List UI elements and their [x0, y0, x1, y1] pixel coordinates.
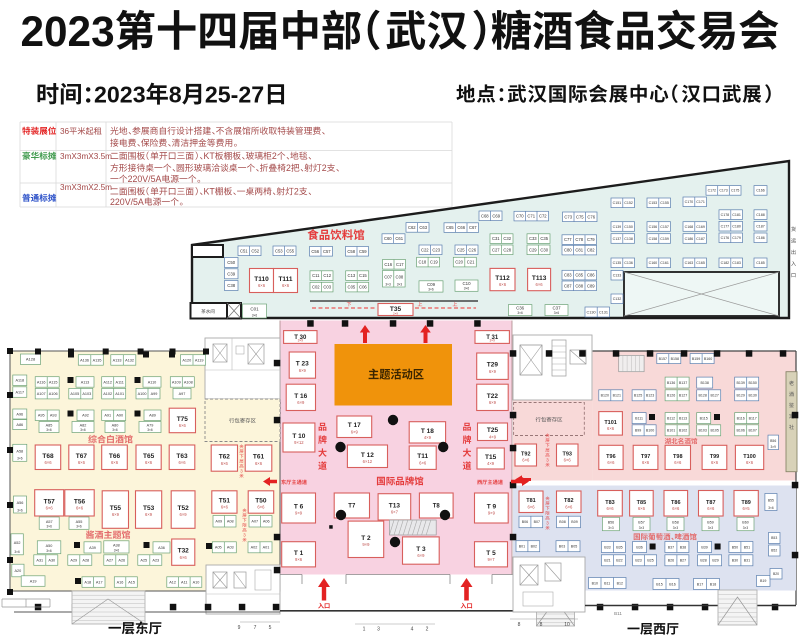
- svg-text:B130: B130: [748, 394, 756, 398]
- svg-text:3×6: 3×6: [428, 288, 434, 292]
- svg-text:C02: C02: [312, 285, 320, 290]
- svg-text:C175: C175: [731, 189, 739, 193]
- svg-text:B27: B27: [680, 559, 686, 563]
- svg-text:C25: C25: [457, 247, 465, 252]
- svg-text:T51: T51: [219, 498, 231, 505]
- svg-text:T 5: T 5: [486, 550, 496, 557]
- svg-text:3×6: 3×6: [464, 287, 470, 291]
- svg-text:B137: B137: [679, 381, 687, 385]
- svg-text:C83: C83: [564, 273, 572, 278]
- svg-text:A39: A39: [89, 546, 96, 550]
- svg-text:T66: T66: [109, 453, 121, 460]
- svg-text:T22: T22: [487, 393, 499, 400]
- svg-text:A103: A103: [82, 392, 91, 396]
- svg-text:2023: 2023: [94, 82, 146, 108]
- svg-text:6×6: 6×6: [607, 426, 615, 431]
- svg-text:C88: C88: [575, 283, 583, 288]
- svg-text:T 10: T 10: [292, 433, 305, 440]
- svg-text:C01: C01: [250, 307, 259, 312]
- svg-text:A25: A25: [140, 558, 147, 562]
- svg-text:9×9: 9×9: [295, 511, 303, 516]
- svg-text:T92: T92: [521, 452, 530, 458]
- svg-text:T 17: T 17: [348, 422, 361, 429]
- svg-text:C169: C169: [696, 225, 705, 229]
- svg-text:6×6: 6×6: [255, 461, 263, 466]
- svg-text:C65: C65: [446, 225, 454, 230]
- svg-text:C21: C21: [467, 260, 475, 265]
- svg-text:C155: C155: [660, 201, 669, 205]
- svg-text:T83: T83: [605, 500, 614, 506]
- svg-text:B36: B36: [636, 545, 642, 549]
- svg-text:B30: B30: [732, 559, 738, 563]
- svg-text:B159: B159: [692, 357, 700, 361]
- svg-text:6×6: 6×6: [672, 506, 680, 511]
- svg-text:3×3: 3×3: [743, 526, 749, 530]
- svg-text:6×6: 6×6: [419, 460, 427, 465]
- svg-text:9: 9: [238, 625, 241, 631]
- svg-text:C39: C39: [227, 271, 235, 276]
- svg-text:B100: B100: [646, 429, 654, 433]
- svg-text:C23: C23: [432, 247, 440, 252]
- svg-text:B55: B55: [768, 499, 774, 503]
- svg-text:A36: A36: [158, 546, 165, 550]
- svg-text:T99: T99: [710, 454, 719, 460]
- svg-text:C187: C187: [756, 225, 765, 229]
- svg-text:2: 2: [286, 163, 291, 173]
- svg-text:B103: B103: [698, 429, 706, 433]
- svg-text:C11: C11: [312, 273, 320, 278]
- svg-text:A118: A118: [16, 379, 25, 383]
- svg-text:6×6: 6×6: [564, 458, 572, 463]
- svg-text:T101: T101: [604, 420, 617, 426]
- svg-text:6×9: 6×9: [112, 512, 120, 517]
- svg-text:C37: C37: [552, 306, 561, 311]
- svg-text:C131: C131: [599, 310, 608, 314]
- svg-text:6×6: 6×6: [606, 506, 614, 511]
- svg-text:C17: C17: [396, 262, 404, 267]
- svg-text:B53: B53: [771, 536, 777, 540]
- svg-text:B50: B50: [732, 545, 738, 549]
- svg-text:A100: A100: [138, 392, 147, 396]
- svg-text:2: 2: [294, 187, 299, 197]
- svg-text:B35: B35: [616, 545, 622, 549]
- svg-text:B05: B05: [571, 545, 577, 549]
- svg-text:6×6: 6×6: [179, 423, 187, 428]
- svg-text:6×6: 6×6: [221, 461, 229, 466]
- svg-text:6×6: 6×6: [522, 458, 530, 463]
- svg-text:6×6: 6×6: [642, 460, 650, 465]
- svg-text:T89: T89: [741, 500, 750, 506]
- svg-text:B58: B58: [672, 521, 678, 525]
- svg-text:T111: T111: [278, 276, 292, 283]
- svg-text:A20: A20: [15, 569, 22, 573]
- svg-text:2: 2: [426, 627, 429, 633]
- svg-text:C76: C76: [587, 214, 595, 219]
- svg-text:9×7: 9×7: [487, 557, 495, 562]
- svg-text:C165: C165: [696, 261, 705, 265]
- svg-text:B52: B52: [771, 549, 777, 553]
- svg-text:B16: B16: [669, 582, 675, 586]
- svg-text:C78: C78: [575, 237, 583, 242]
- svg-text:B38: B38: [680, 545, 686, 549]
- svg-text:A106: A106: [49, 392, 58, 396]
- svg-text:6×6: 6×6: [178, 460, 186, 465]
- svg-text:4×9: 4×9: [424, 435, 432, 440]
- svg-text:A86: A86: [16, 423, 23, 427]
- svg-text:C185: C185: [756, 261, 765, 265]
- svg-text:T96: T96: [606, 454, 615, 460]
- svg-text:3×3: 3×3: [385, 282, 391, 286]
- svg-text:C161: C161: [660, 261, 669, 265]
- svg-text:C03: C03: [323, 285, 331, 290]
- svg-text:3mX3mX3.5m: 3mX3mX3.5m: [60, 152, 112, 161]
- svg-text:C07: C07: [384, 274, 392, 279]
- svg-text:3×6: 3×6: [80, 428, 86, 432]
- svg-text:C69: C69: [492, 213, 500, 218]
- svg-text:B60: B60: [742, 521, 748, 525]
- svg-text:T 18: T 18: [421, 428, 434, 435]
- svg-text:A115: A115: [49, 380, 58, 384]
- svg-text:C181: C181: [732, 213, 741, 217]
- svg-text:C188: C188: [756, 213, 765, 217]
- svg-text:6×6: 6×6: [607, 460, 615, 465]
- svg-text:3×6: 3×6: [517, 311, 523, 315]
- svg-text:6×9: 6×9: [145, 512, 153, 517]
- svg-text:C137: C137: [613, 237, 622, 241]
- svg-text:B18: B18: [710, 582, 716, 586]
- svg-text:C71: C71: [527, 214, 535, 219]
- svg-text:T7: T7: [348, 504, 356, 510]
- svg-text:T15: T15: [485, 454, 497, 461]
- svg-text:C26: C26: [468, 247, 476, 252]
- svg-text:6×6: 6×6: [499, 282, 507, 287]
- svg-text:B138: B138: [700, 381, 708, 385]
- svg-text:A120: A120: [182, 358, 191, 362]
- svg-text:T67: T67: [76, 453, 88, 460]
- svg-text:C82: C82: [587, 248, 595, 253]
- svg-text:T82: T82: [564, 498, 573, 504]
- svg-text:B102: B102: [679, 429, 687, 433]
- svg-text:A93: A93: [50, 414, 57, 418]
- svg-text:C156: C156: [649, 225, 658, 229]
- svg-text:3×3: 3×3: [397, 282, 403, 286]
- svg-text:3×6: 3×6: [112, 428, 118, 432]
- svg-text:A02: A02: [251, 546, 258, 550]
- svg-text:6×6: 6×6: [46, 506, 54, 511]
- svg-text:T 6: T 6: [294, 504, 304, 511]
- svg-text:T63: T63: [176, 453, 188, 460]
- svg-text:T 12: T 12: [361, 452, 374, 459]
- svg-text:B106: B106: [736, 429, 744, 433]
- svg-text:3×6: 3×6: [17, 457, 23, 461]
- svg-text:C173: C173: [719, 189, 727, 193]
- svg-text:C135: C135: [613, 261, 622, 265]
- svg-text:T100: T100: [743, 454, 756, 460]
- svg-text:A89: A89: [149, 414, 156, 418]
- svg-text:T97: T97: [641, 454, 650, 460]
- svg-text:9×6: 9×6: [295, 557, 303, 562]
- svg-text:A23: A23: [152, 558, 159, 562]
- svg-text:B126: B126: [667, 394, 675, 398]
- svg-text:B08: B08: [559, 520, 565, 524]
- svg-text:C75: C75: [576, 214, 584, 219]
- svg-text:3×9: 3×9: [298, 339, 304, 343]
- svg-text:T81: T81: [526, 498, 535, 504]
- svg-text:T52: T52: [177, 505, 189, 512]
- svg-text:A107: A107: [37, 392, 46, 396]
- svg-text:6×6: 6×6: [711, 460, 719, 465]
- svg-text:A102: A102: [103, 392, 112, 396]
- svg-text:A117: A117: [16, 390, 25, 394]
- svg-text:T56: T56: [74, 498, 86, 505]
- svg-text:B33: B33: [604, 545, 610, 549]
- svg-text:C85: C85: [575, 273, 583, 278]
- svg-text:B17: B17: [697, 582, 703, 586]
- svg-text:T32: T32: [178, 548, 190, 555]
- svg-text:6×9: 6×9: [417, 553, 425, 558]
- svg-text:A29: A29: [70, 558, 77, 562]
- svg-text:T85: T85: [637, 500, 646, 506]
- svg-text:C61: C61: [395, 236, 403, 241]
- svg-text:A30: A30: [48, 558, 55, 562]
- svg-text:C58: C58: [347, 249, 355, 254]
- svg-text:B37: B37: [668, 545, 674, 549]
- svg-text:B29: B29: [712, 559, 718, 563]
- svg-text:C186: C186: [756, 236, 765, 240]
- svg-text:B112: B112: [667, 416, 675, 420]
- svg-text:B107: B107: [748, 429, 756, 433]
- svg-text:B12: B12: [617, 581, 623, 585]
- svg-text:A95: A95: [38, 414, 45, 418]
- svg-text:6×6: 6×6: [527, 504, 535, 509]
- svg-text:6×7: 6×7: [391, 510, 399, 515]
- svg-text:6×9: 6×9: [489, 369, 497, 374]
- svg-text:B150: B150: [748, 381, 756, 385]
- svg-text:B20: B20: [773, 572, 779, 576]
- svg-text:C53: C53: [275, 248, 283, 253]
- svg-text:C30: C30: [540, 247, 548, 252]
- svg-text:6×6: 6×6: [145, 460, 153, 465]
- svg-text:B56: B56: [608, 521, 614, 525]
- svg-text:KT: KT: [204, 151, 216, 161]
- svg-text:A31: A31: [36, 558, 43, 562]
- svg-text:C60: C60: [384, 236, 392, 241]
- svg-text:C50: C50: [227, 260, 235, 265]
- svg-text:B157: B157: [659, 357, 667, 361]
- svg-text:A55: A55: [76, 520, 83, 524]
- svg-text:C89: C89: [587, 283, 595, 288]
- svg-text:3×6: 3×6: [14, 550, 20, 554]
- svg-text:C15: C15: [359, 273, 367, 278]
- svg-text:5: 5: [269, 625, 272, 631]
- svg-text:C55: C55: [286, 248, 294, 253]
- svg-text:3×6: 3×6: [252, 313, 258, 317]
- svg-text:B06: B06: [522, 520, 528, 524]
- svg-text:A111: A111: [116, 380, 124, 384]
- svg-text:36: 36: [60, 127, 70, 136]
- svg-text:3×3: 3×3: [608, 526, 614, 530]
- svg-text:A50: A50: [46, 544, 53, 548]
- svg-text:C36: C36: [516, 306, 525, 311]
- svg-text:A15: A15: [128, 580, 135, 584]
- svg-text:6×5: 6×5: [743, 506, 751, 511]
- svg-text:B28: B28: [700, 559, 706, 563]
- svg-text:B160: B160: [704, 357, 712, 361]
- svg-text:9×9: 9×9: [488, 511, 496, 516]
- svg-text:A52: A52: [14, 541, 21, 545]
- svg-text:4×9: 4×9: [487, 461, 495, 466]
- svg-text:A99: A99: [151, 392, 158, 396]
- svg-text:A57: A57: [46, 520, 53, 524]
- svg-text:B39: B39: [701, 545, 707, 549]
- svg-text:3×6: 3×6: [554, 311, 560, 315]
- svg-text:A119: A119: [195, 358, 204, 362]
- svg-text:T113: T113: [532, 275, 547, 282]
- svg-text:C38: C38: [227, 283, 235, 288]
- svg-text:C159: C159: [660, 237, 669, 241]
- svg-text:B59: B59: [707, 521, 713, 525]
- svg-text:B111: B111: [635, 416, 643, 420]
- svg-text:C19: C19: [430, 260, 438, 265]
- svg-text:C86: C86: [587, 273, 595, 278]
- svg-text:3×6: 3×6: [76, 525, 82, 529]
- svg-text:3×6: 3×6: [147, 428, 153, 432]
- svg-text:2: 2: [272, 151, 277, 161]
- svg-text:C52: C52: [251, 248, 259, 253]
- svg-text:C150: C150: [624, 225, 633, 229]
- svg-text:B57: B57: [638, 521, 644, 525]
- svg-text:C18: C18: [419, 260, 427, 265]
- svg-text:T93: T93: [562, 452, 571, 458]
- svg-text:A133: A133: [113, 358, 122, 362]
- svg-text:A113: A113: [81, 380, 90, 384]
- svg-text:C77: C77: [564, 237, 572, 242]
- svg-text:A01: A01: [263, 546, 270, 550]
- svg-text:C139: C139: [613, 225, 622, 229]
- svg-text:C176: C176: [721, 236, 730, 240]
- svg-text:A136: A136: [80, 358, 89, 362]
- svg-text:6×6: 6×6: [180, 555, 188, 560]
- svg-text:3: 3: [377, 627, 380, 633]
- svg-text:A132: A132: [125, 358, 134, 362]
- svg-text:B158: B158: [671, 357, 679, 361]
- svg-text:3×9: 3×9: [489, 339, 495, 343]
- svg-text:C187: C187: [696, 237, 705, 241]
- svg-text:A109: A109: [172, 380, 181, 384]
- svg-text:C28: C28: [503, 247, 511, 252]
- svg-text:C168: C168: [685, 225, 694, 229]
- svg-text:B25: B25: [647, 559, 653, 563]
- svg-text:10: 10: [564, 622, 570, 628]
- svg-text:B125: B125: [634, 394, 642, 398]
- svg-text:6×6: 6×6: [638, 506, 646, 511]
- svg-text:C59: C59: [359, 249, 367, 254]
- svg-text:B121: B121: [613, 394, 621, 398]
- svg-text:T 3: T 3: [416, 546, 426, 553]
- svg-text:A18: A18: [84, 580, 91, 584]
- svg-text:C31: C31: [492, 236, 500, 241]
- svg-text:C180: C180: [732, 225, 741, 229]
- svg-text:T13: T13: [389, 502, 401, 509]
- svg-text:6×6: 6×6: [707, 506, 715, 511]
- svg-text:B07: B07: [534, 520, 540, 524]
- svg-text:B129: B129: [736, 394, 744, 398]
- svg-text:4×9: 4×9: [489, 434, 497, 439]
- svg-text:C177: C177: [721, 225, 730, 229]
- svg-text:2: 2: [322, 163, 327, 173]
- svg-text:A07: A07: [251, 520, 258, 524]
- svg-text:2023: 2023: [21, 8, 115, 55]
- svg-text:6×6: 6×6: [258, 283, 266, 288]
- svg-text:T68: T68: [42, 453, 54, 460]
- svg-text:6×6: 6×6: [674, 460, 682, 465]
- svg-text:3×3: 3×3: [708, 526, 714, 530]
- svg-text:7: 7: [254, 625, 257, 631]
- svg-text:T86: T86: [671, 500, 680, 506]
- svg-text:C136: C136: [624, 261, 633, 265]
- svg-text:A17: A17: [96, 580, 103, 584]
- svg-text:B02: B02: [531, 545, 537, 549]
- svg-text:A105: A105: [70, 392, 79, 396]
- svg-text:6×6: 6×6: [282, 283, 290, 288]
- svg-text:C29: C29: [529, 247, 537, 252]
- svg-text:C171: C171: [696, 200, 705, 204]
- svg-text:T8: T8: [433, 504, 441, 510]
- svg-text:4: 4: [411, 627, 414, 633]
- svg-text:T25: T25: [487, 427, 499, 434]
- svg-text:25-27: 25-27: [205, 82, 264, 108]
- svg-text:C178: C178: [721, 213, 730, 217]
- svg-text:C05: C05: [348, 285, 356, 290]
- svg-text:6×12: 6×12: [363, 459, 373, 464]
- svg-text:B10: B10: [592, 581, 598, 585]
- svg-text:A96: A96: [16, 412, 23, 416]
- svg-text:C79: C79: [587, 237, 595, 242]
- svg-text:A11: A11: [181, 580, 187, 584]
- svg-text:C183: C183: [732, 261, 741, 265]
- svg-text:T75: T75: [177, 416, 189, 423]
- svg-text:B09: B09: [571, 520, 577, 524]
- svg-text:3×3: 3×3: [673, 526, 679, 530]
- svg-text:C182: C182: [721, 261, 730, 265]
- svg-text:6×6: 6×6: [536, 282, 544, 287]
- svg-text:A26: A26: [118, 558, 125, 562]
- svg-text:3×6: 3×6: [768, 506, 774, 510]
- svg-text:C133: C133: [613, 274, 622, 278]
- svg-text:3×9: 3×9: [770, 445, 776, 449]
- svg-text:C67: C67: [469, 225, 477, 230]
- svg-text:A91: A91: [104, 414, 111, 418]
- svg-text:A128: A128: [26, 357, 36, 362]
- svg-text:A90: A90: [116, 414, 123, 418]
- svg-text:B139: B139: [736, 381, 744, 385]
- svg-text:A38: A38: [113, 544, 120, 548]
- svg-text:B19: B19: [760, 579, 766, 583]
- svg-text:6×6: 6×6: [44, 460, 52, 465]
- svg-text:A110: A110: [148, 380, 157, 384]
- svg-text:C87: C87: [564, 283, 572, 288]
- svg-text:C20: C20: [455, 260, 463, 265]
- svg-text:T62: T62: [219, 454, 231, 461]
- svg-text:C68: C68: [481, 213, 489, 218]
- svg-text:A92: A92: [82, 414, 89, 418]
- svg-text:C62: C62: [408, 225, 416, 230]
- svg-text:8: 8: [540, 622, 543, 628]
- svg-text:9×9: 9×9: [362, 542, 370, 547]
- svg-text:C08: C08: [396, 274, 404, 279]
- svg-text:KT: KT: [204, 187, 216, 197]
- svg-text:C166: C166: [756, 189, 765, 193]
